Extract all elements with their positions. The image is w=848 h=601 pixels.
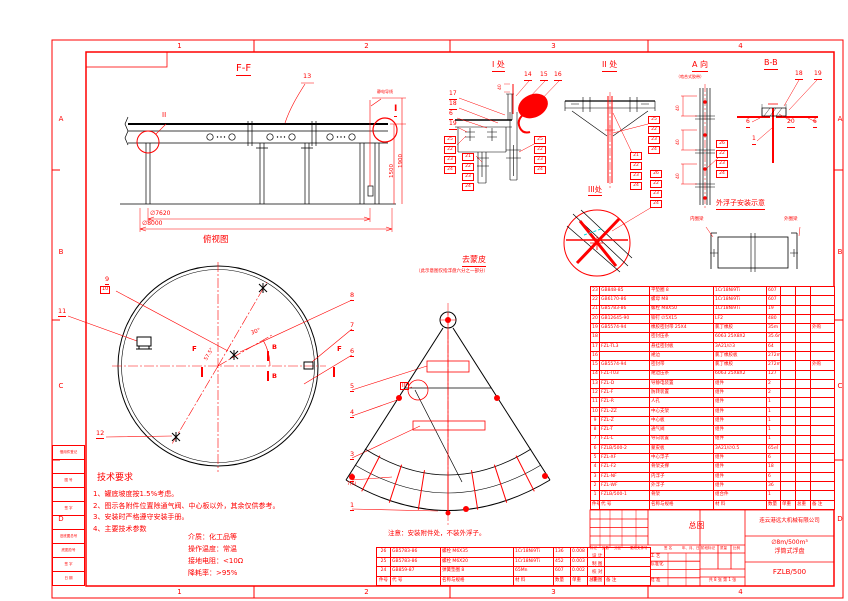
bom-row: 4FZL-F2骨架支撑组件18 (591, 463, 835, 472)
view-a-title: A 向 (692, 61, 708, 72)
balloon: 25 (444, 136, 456, 144)
bb-balloon-18: 18 (795, 71, 803, 80)
balloon: 23 (630, 172, 642, 180)
balloon-1: 1 (350, 502, 354, 511)
tech-req-item: 2、图示各附件位置除通气阀、中心板以外，其余仅供参考。 (93, 501, 279, 513)
balloon: 23 (462, 173, 474, 181)
product-spec: ∅8m/500m³ (745, 540, 834, 547)
zone-label: 2 (273, 40, 460, 52)
ff-dim-8000: ∅8000 (142, 221, 163, 228)
float-install-title: 外浮子安装示意 (716, 200, 765, 210)
margin-strip-label: 旧底图总号 (52, 530, 85, 544)
bom-row: 23GB848-85平垫圈 81Cr18Ni9Ti607 (591, 287, 835, 296)
tech-req-param: 操作温度：常温 (188, 543, 243, 555)
balloon: 25 (648, 116, 660, 124)
bom-small-table: 26GB5783-86螺栓 M6X351Cr18Ni9Ti1360.00825G… (376, 547, 651, 586)
zone-label: C (834, 319, 846, 453)
margin-strip-label (52, 488, 85, 502)
zone-numbers-top: 1234 (86, 40, 834, 52)
bom-row: 8FZL-T通气阀组件1 (591, 426, 835, 435)
bom-row: 17FZL-TL3悬挂密封板3A21/∅364 (591, 342, 835, 351)
balloon: 24 (650, 200, 662, 208)
zone-label: D (834, 453, 846, 587)
detail-i-stack-left: 25222324 (444, 136, 456, 176)
balloon-18: 18 (449, 101, 457, 110)
plan-top-view (68, 262, 352, 472)
bom-row: 15GB5574-94密封带氯丁橡胶272m外购 (591, 361, 835, 370)
balloon-19: 19 (449, 121, 457, 130)
balloon: 26 (716, 140, 728, 148)
inner-beam-label: 内圈梁 (690, 218, 704, 223)
tech-req-param: 介质：化工品等 (188, 531, 243, 543)
ff-balloon-13: 13 (303, 73, 311, 80)
rev-header-date: 年、月、日 (682, 547, 700, 551)
balloon: 24 (462, 183, 474, 191)
zone-label: A (834, 52, 846, 186)
bb-balloon-20: 20 (787, 119, 795, 128)
bom-row: 7FZL-L导向装置组件1 (591, 435, 835, 444)
bom-row: 25GB5783-86螺栓 M6X201Cr18Ni9Ti4520.003 (377, 557, 651, 567)
section-bb-title: B-B (764, 59, 778, 70)
bom-row: 9FZL-Z中心板组件1 (591, 416, 835, 425)
bom-row: 12FZL-F防转装置组件2 (591, 389, 835, 398)
fan-view-subtitle: （此示意图仅指浮盘六分之一部分） (416, 270, 488, 275)
balloon-17: 17 (449, 91, 457, 100)
balloon: 21 (462, 153, 474, 161)
stage-header: 阶段标记 (701, 547, 715, 551)
balloon-4: 4 (350, 409, 354, 418)
balloon: 22 (648, 126, 660, 134)
ff-dim-1500: 1500 (389, 164, 395, 178)
balloon-6b: 6 (449, 111, 453, 120)
scale-header: 比例 (733, 547, 740, 551)
tech-req-items: 1、罐底坡度按1.5%考虑。2、图示各附件位置除通气阀、中心板以外，其余仅供参考… (93, 489, 279, 535)
ff-title: F-F (236, 63, 251, 76)
sign-approve: 批 准 (650, 579, 660, 584)
balloon-3: 3 (350, 451, 354, 460)
zone-label: 3 (460, 40, 647, 52)
sign-check: 校 对 (592, 571, 602, 576)
detail-ii-title: II 处 (602, 61, 617, 72)
view-a-stack: 26222324 (716, 140, 728, 180)
drawing-number: FZLB/500 (745, 569, 834, 577)
view-a (681, 84, 718, 210)
view-a-subtitle: （啮合式胶带） (676, 75, 704, 79)
bb-balloon-6-left: 6 (746, 119, 750, 128)
balloon: 24 (630, 182, 642, 190)
zone-label: 1 (86, 586, 273, 598)
detail-iii-title: III处 (588, 186, 602, 196)
detail-iii-view (564, 207, 652, 276)
sign-standard: 标准化 (650, 563, 664, 568)
ff-dim-1900: 1900 (398, 154, 404, 168)
zone-label: 1 (86, 40, 273, 52)
drawing-canvas: 1234 1234 ABCD ABCD 借用件登记图 号签 字旧底图总号底图总号… (0, 0, 848, 601)
zone-label: B (54, 186, 68, 320)
tech-req-title: 技术要求 (97, 474, 133, 484)
margin-strip-label: 底图总号 (52, 544, 85, 558)
bom-row: 11FZL-R人孔组件1 (591, 398, 835, 407)
balloon: 22 (716, 150, 728, 158)
install-note: 注意：安装附件处，不装外浮子。 (388, 530, 486, 537)
balloon-11: 11 (58, 308, 66, 317)
detail-i-stack-right: 25222324 (534, 136, 546, 176)
balloon-16: 16 (554, 72, 562, 81)
balloon: 22 (630, 162, 642, 170)
bom-row: 18密封压条6063 25X8X235.6m (591, 333, 835, 342)
detail-ii-stack-left: 21222324 (630, 152, 642, 192)
balloon: 23 (648, 136, 660, 144)
zone-label: 4 (647, 586, 834, 598)
detail-ii-stack-right: 25222324 (648, 116, 660, 156)
weight-header: 质量 (720, 547, 727, 551)
balloon: 24 (534, 166, 546, 174)
rev-header-sign: 签 名 (664, 547, 672, 551)
section-f-left: F (192, 346, 197, 354)
zone-letters-right: ABCD (834, 52, 846, 586)
bb-balloon-6-right: 6 (813, 119, 817, 128)
bom-row: 14FZL-T03裙边压条6063 25X8X2127 (591, 370, 835, 379)
bom-header-row: 件号代 号 名称与规格材 料 数量单重 总重备 注 (591, 500, 835, 509)
bom-main-header: 件号代 号 名称与规格材 料 数量单重 总重备 注 (591, 500, 835, 509)
fan-skeleton-view (346, 303, 550, 525)
outer-beam-label: 外圈梁 (784, 218, 798, 223)
bom-row: 20GB12645-90铆钉 ∅5X15LF2480 (591, 314, 835, 323)
product-name: 浮筒式浮盘 (745, 549, 834, 556)
balloon: 21 (630, 152, 642, 160)
sheet-info: 共 8 张 第 1 张 (700, 578, 745, 582)
bom-row: 16裙边氯丁橡胶板272m (591, 351, 835, 360)
balloon: 22 (534, 146, 546, 154)
bb-balloon-1: 1 (752, 136, 756, 145)
balloon-2: 2 (350, 473, 354, 482)
balloon-14: 14 (524, 72, 532, 81)
balloon-8: 8 (350, 292, 354, 301)
balloon: 25 (534, 136, 546, 144)
margin-strip-label: 签 字 (52, 558, 85, 572)
balloon: 22 (650, 180, 662, 188)
bom-row: 3FZL-NF内浮子组件6 (591, 472, 835, 481)
balloon: 24 (444, 166, 456, 174)
balloon: 22 (444, 146, 456, 154)
margin-strip-label: 借用件登记 (52, 445, 85, 460)
detail-iii-stack: 26222324 (650, 170, 662, 210)
detail-i-stack-bottom: 21222324 (462, 153, 474, 193)
ff-static-wire-label: 静电导线 (377, 90, 393, 94)
float-install-view (706, 227, 800, 272)
bom-row: 5FZL-XF中心浮子组件6 (591, 454, 835, 463)
detail-i-title: I 处 (492, 61, 505, 72)
ff-detail-i-marker: I (394, 105, 397, 117)
balloon-6: 6 (350, 348, 354, 357)
tech-req-param: 降耗率：>95% (188, 567, 243, 579)
balloon: 22 (462, 163, 474, 171)
zone-label: 4 (647, 40, 834, 52)
balloon: 23 (444, 156, 456, 164)
tech-req-item: 3、安装时严格遵守安装手册。 (93, 512, 279, 524)
bom-row: 6FZLB/500-2蒙皮板3A21/∅0.565㎡ (591, 444, 835, 453)
bom-row: 19GB5574-94橡胶密封带 25X4氯丁橡胶35m外购 (591, 324, 835, 333)
tech-req-item: 1、罐底坡度按1.5%考虑。 (93, 489, 279, 501)
balloon-2-sublabel: 7(6) (347, 483, 356, 488)
fan-detail-iii-marker: III (400, 382, 409, 390)
zone-numbers-bottom: 1234 (86, 586, 834, 598)
rev-header-mark: 标记 (590, 547, 597, 551)
bb-balloon-19: 19 (814, 71, 822, 80)
zone-label: A (54, 52, 68, 186)
ff-dim-7620: ∅7620 (150, 211, 171, 218)
section-b-bottom: B (272, 373, 277, 380)
sign-design: 设 计 (592, 555, 602, 560)
sign-process: 工 艺 (650, 555, 660, 560)
balloon-12: 12 (96, 430, 104, 439)
sign-review: 审 图 (592, 579, 602, 584)
bom-row: 24GB859-87弹簧垫圈 865Mn6070.002 (377, 567, 651, 577)
zone-label: C (54, 319, 68, 453)
fan-view-title: 去蒙皮 (462, 256, 486, 267)
drawing-type: 总图 (648, 522, 745, 531)
top-view-title: 俯视图 (203, 236, 229, 245)
bom-row: 22GB6170-86螺母 M81Cr18Ni9Ti607 (591, 296, 835, 305)
balloon: 26 (650, 170, 662, 178)
margin-strip-label: 签 字 (52, 502, 85, 516)
margin-strip-label (52, 460, 85, 474)
bom-small-header: 件号代 号 名称与规格材 料 数量单重 总重备 注 (377, 576, 651, 586)
balloon: 23 (534, 156, 546, 164)
bom-main-table: 23GB848-85平垫圈 81Cr18Ni9Ti60722GB6170-86螺… (590, 286, 835, 510)
balloon: 23 (716, 160, 728, 168)
bom-row: 21GB5783-86螺栓 M8X501Cr18Ni9Ti19 (591, 305, 835, 314)
bom-row: 13FZL-D导静电装置组件2 (591, 379, 835, 388)
view-a-dim3: 40 (677, 173, 682, 179)
balloon-15: 15 (540, 72, 548, 81)
balloon: 23 (650, 190, 662, 198)
rev-header-docno: 更改文件号 (630, 547, 648, 551)
bom-header-row: 件号代 号 名称与规格材 料 数量单重 总重备 注 (377, 576, 651, 586)
bom-row: 1FZLB/500-1骨架组合件1 (591, 491, 835, 501)
balloon-7: 7 (350, 322, 354, 331)
zone-label: B (834, 186, 846, 320)
tech-req-item: 4、主要技术参数 (93, 524, 279, 536)
ff-detail-ii-marker: II (162, 112, 166, 120)
view-a-dim1: 40 (677, 105, 682, 111)
margin-strip-label: 图 号 (52, 474, 85, 488)
balloon-10: 10 (100, 286, 110, 294)
rev-header-count: 处数 (602, 547, 609, 551)
tech-req-params: 介质：化工品等操作温度：常温接地电阻：<10Ω降耗率：>95% (188, 531, 243, 579)
margin-strip-label: 日 期 (52, 572, 85, 586)
rev-header-zone: 分区 (614, 547, 621, 551)
balloon-5: 5 (350, 383, 354, 392)
bom-row: 2FZL-WF外浮子组件36 (591, 481, 835, 490)
sign-draw: 制 图 (592, 563, 602, 568)
section-f-right: F (337, 346, 342, 354)
bom-row: 10FZL-ZZ中心支架组件1 (591, 407, 835, 416)
tech-req-param: 接地电阻：<10Ω (188, 555, 243, 567)
balloon: 24 (716, 170, 728, 178)
margin-strip-label (52, 516, 85, 530)
balloon-9: 9 (105, 276, 109, 285)
section-b-top: B (272, 344, 277, 351)
margin-registration-strip: 借用件登记图 号签 字旧底图总号底图总号签 字日 期 (52, 445, 85, 586)
zone-label: 3 (460, 586, 647, 598)
balloon: 24 (648, 146, 660, 154)
detail-i-dim-40: 40 (499, 84, 504, 90)
company-name: 连云港远大机械有限公司 (745, 518, 834, 524)
view-a-dim2: 40 (677, 139, 682, 145)
zone-label: 2 (273, 586, 460, 598)
bom-row: 26GB5783-86螺栓 M6X351Cr18Ni9Ti1360.008 (377, 548, 651, 558)
